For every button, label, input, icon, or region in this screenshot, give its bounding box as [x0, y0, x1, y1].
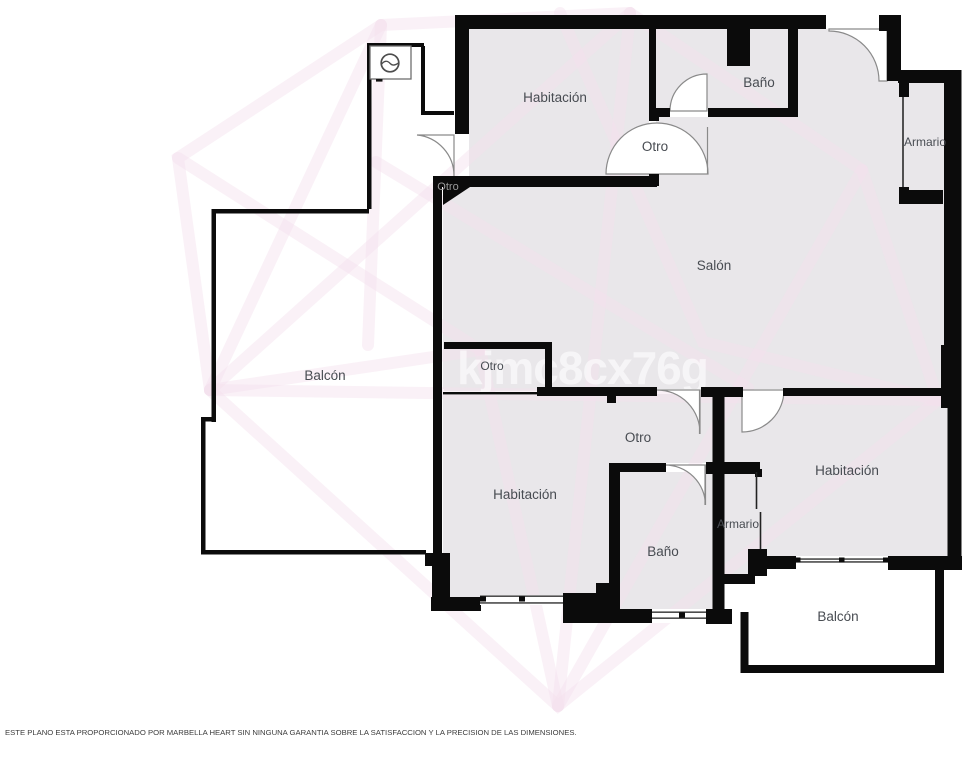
svg-text:Otro: Otro: [480, 359, 504, 373]
svg-text:Balcón: Balcón: [304, 368, 345, 383]
svg-text:Balcón: Balcón: [817, 609, 858, 624]
svg-text:Armario: Armario: [904, 135, 946, 149]
svg-text:Habitación: Habitación: [493, 487, 557, 502]
svg-text:Habitación: Habitación: [815, 463, 879, 478]
svg-text:Otro: Otro: [437, 181, 458, 193]
svg-text:Baño: Baño: [743, 75, 775, 90]
svg-text:Baño: Baño: [647, 544, 679, 559]
svg-text:Otro: Otro: [625, 430, 651, 445]
svg-text:Armario: Armario: [717, 517, 759, 531]
svg-text:ESTE PLANO ESTA PROPORCIONADO: ESTE PLANO ESTA PROPORCIONADO POR MARBEL…: [5, 728, 577, 737]
svg-text:Salón: Salón: [697, 258, 732, 273]
svg-text:Habitación: Habitación: [523, 90, 587, 105]
svg-text:Otro: Otro: [642, 139, 668, 154]
